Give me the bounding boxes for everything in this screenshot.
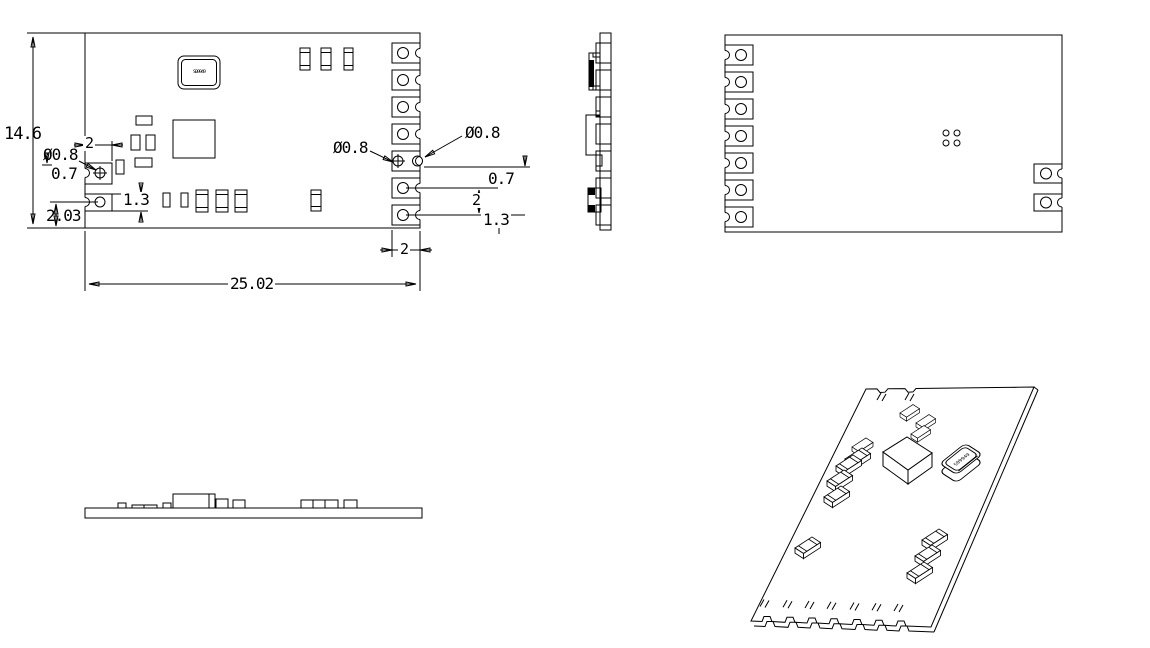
top-view <box>27 33 530 291</box>
passive-components <box>116 48 353 212</box>
bottom-view <box>721 35 1067 232</box>
dim-right-pad-height: 1.3 <box>481 212 511 228</box>
crystal-side <box>589 53 600 90</box>
dimension-lines <box>27 33 530 291</box>
pcb-dimensional-drawing: S09949 14.6 2 Ø0.8 0.7 2.03 1.3 Ø0.8 Ø0.… <box>0 0 1150 648</box>
dim-left-hole-dia: Ø0.8 <box>43 147 78 163</box>
crystal-marking: S09949 <box>185 69 213 74</box>
dim-left-pad-width: 2 <box>83 136 95 151</box>
capacitor-side <box>588 188 601 212</box>
dim-right-hole-dia-inner: Ø0.8 <box>333 140 368 156</box>
dim-right-pad-width: 2 <box>398 242 410 257</box>
dim-right-pad-gap: 0.7 <box>488 171 514 187</box>
side-view <box>586 33 611 230</box>
dim-left-hole-offset: 0.7 <box>51 166 77 182</box>
dim-left-pad-edge-offset: 2.03 <box>46 208 81 224</box>
edge-pad-segments <box>596 43 611 225</box>
pcb-outline-bottom <box>725 35 1062 232</box>
drawing-canvas: S09949 <box>0 0 1150 648</box>
pcb-3d <box>751 387 1034 627</box>
castellated-pads-bottom <box>721 45 1067 227</box>
ic-chip <box>173 120 215 158</box>
profile-components <box>118 494 357 508</box>
dim-board-width: 25.02 <box>228 276 275 292</box>
via-holes <box>943 130 960 146</box>
front-view <box>85 494 422 518</box>
dim-left-pad-height: 1.3 <box>121 192 151 208</box>
dim-right-pad-pitch: 2 <box>470 193 482 208</box>
dim-right-hole-dia-edge: Ø0.8 <box>465 125 500 141</box>
pcb-profile <box>85 508 422 518</box>
isometric-view: S09949 <box>751 387 1038 632</box>
dim-board-height: 14.6 <box>4 126 41 143</box>
